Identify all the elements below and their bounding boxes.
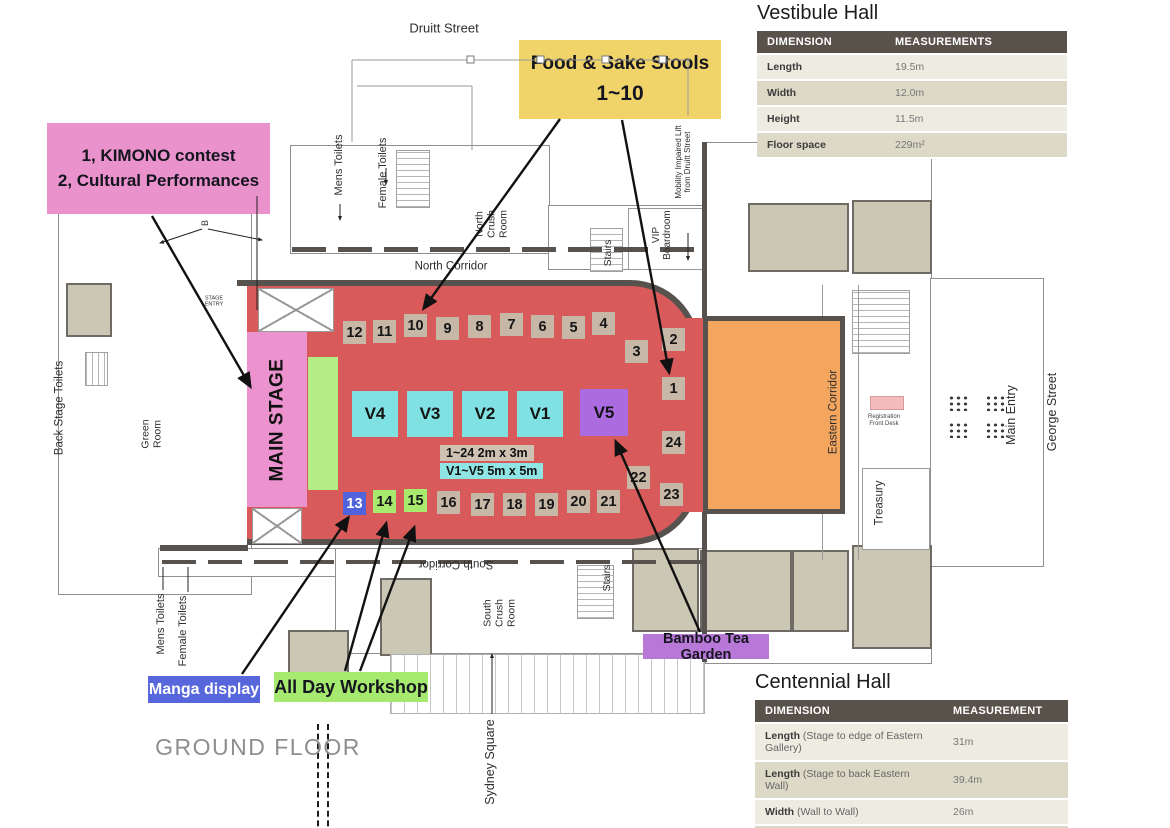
room-label-stairs-bottom: Stairs (602, 565, 614, 592)
table-row: Length (Stage to back Eastern Wall) 39.4… (755, 761, 1068, 799)
stool-7: 7 (500, 313, 523, 336)
stool-3: 3 (625, 340, 648, 363)
callout-food-sake: Food & Sake Stools 1~10 (519, 40, 721, 119)
table-row: Height 11.5m (757, 106, 1067, 132)
room-label-treasury: Treasury (874, 481, 887, 526)
registration-desk (870, 396, 904, 410)
room-label-north-crush: North Crush Room (474, 210, 509, 238)
eastern-corridor-line-east (858, 285, 859, 560)
grand-steps-south (390, 654, 705, 714)
stool-24: 24 (662, 431, 685, 454)
street-label-sydney-square: Sydney Square (483, 719, 497, 804)
centennial-col-dimension: DIMENSION (755, 700, 943, 723)
stool-6: 6 (531, 315, 554, 338)
stool-14: 14 (373, 490, 396, 513)
stairs-north (396, 150, 430, 208)
room-label-female-toilets-top: Female Toilets (377, 138, 389, 209)
room-tea-garden-a (700, 550, 792, 632)
stairs-east (852, 290, 910, 354)
door-label-b: B (200, 220, 210, 226)
vestibule-hall-floor (703, 316, 845, 514)
booth-v2: V2 (462, 391, 508, 437)
room-tea-garden-b (792, 550, 849, 632)
east-wing-west-wall-upper (702, 142, 707, 320)
room-label-stage-entry: STAGE ENTRY (205, 296, 224, 309)
table-row: Length (Stage to edge of Eastern Gallery… (755, 723, 1068, 761)
booth-size-legend: V1~V5 5m x 5m (440, 463, 543, 479)
callout-kimono-line2: 2, Cultural Performances (58, 169, 259, 194)
callout-manga-label: Manga display (149, 681, 259, 699)
room-label-eastern-corridor: Eastern Corridor (828, 370, 841, 454)
stool-9: 9 (436, 317, 459, 340)
room-label-mobility-lift: Mobility Impaired Lift from Druitt Stree… (675, 125, 693, 198)
centennial-hall-title: Centennial Hall (755, 671, 1068, 694)
callout-bamboo: Bamboo Tea Garden (643, 634, 769, 659)
stool-13: 13 (343, 492, 366, 515)
room-corner-ne (852, 200, 932, 274)
stage-skylight-south (252, 508, 302, 544)
callout-workshop: All Day Workshop (274, 672, 428, 702)
stool-1: 1 (662, 377, 685, 400)
vestibule-hall-section: Vestibule Hall DIMENSION MEASUREMENTS Le… (757, 2, 1067, 159)
west-wing-block (58, 208, 252, 595)
callout-kimono-line1: 1, KIMONO contest (82, 144, 236, 169)
centennial-hall-section: Centennial Hall DIMENSION MEASUREMENT Le… (755, 671, 1068, 828)
vestibule-hall-table: DIMENSION MEASUREMENTS Length 19.5m Widt… (757, 31, 1067, 159)
stool-5: 5 (562, 316, 585, 339)
vestibule-col-dimension: DIMENSION (757, 31, 885, 54)
room-label-back-stage-toilets: Back Stage Toilets (54, 361, 67, 455)
room-label-female-toilets-bottom: Female Toilets (177, 596, 189, 667)
table-row: Width (Wall to Wall) 26m (755, 799, 1068, 825)
stool-20: 20 (567, 490, 590, 513)
entry-table-dots (985, 422, 1005, 438)
vestibule-hall-title: Vestibule Hall (757, 2, 1067, 25)
table-row: Length 19.5m (757, 54, 1067, 80)
ground-floor-label: GROUND FLOOR (155, 734, 361, 760)
room-backstage-corner (66, 283, 112, 337)
stairs-west (85, 352, 108, 386)
vestibule-col-measurements: MEASUREMENTS (885, 31, 1067, 54)
label-main-entry: Main Entry (1004, 385, 1018, 445)
booth-v5: V5 (580, 389, 628, 436)
centennial-col-measurement: MEASUREMENT (943, 700, 1068, 723)
entry-table-dots (948, 395, 968, 411)
stool-22: 22 (627, 466, 650, 489)
stool-16: 16 (437, 491, 460, 514)
north-corridor-wall (292, 247, 702, 252)
street-label-george: George Street (1045, 373, 1059, 452)
stool-2: 2 (662, 328, 685, 351)
room-label-north-corridor: North Corridor (415, 260, 488, 273)
centennial-hall-table: DIMENSION MEASUREMENT Length (Stage to e… (755, 700, 1068, 828)
room-label-south-corridor: South Corridor (419, 558, 494, 570)
callout-manga: Manga display (148, 676, 260, 703)
stool-23: 23 (660, 483, 683, 506)
callout-bamboo-label: Bamboo Tea Garden (643, 631, 769, 663)
room-south-pavilion (288, 630, 349, 676)
stool-15: 15 (404, 489, 427, 512)
stool-size-legend: 1~24 2m x 3m (440, 445, 534, 461)
stool-4: 4 (592, 312, 615, 335)
callout-workshop-label: All Day Workshop (274, 677, 428, 698)
booth-v4: V4 (352, 391, 398, 437)
room-south-side (380, 578, 432, 656)
stool-11: 11 (373, 320, 396, 343)
street-label-druitt: Druitt Street (409, 22, 478, 37)
stool-12: 12 (343, 321, 366, 344)
stool-21: 21 (597, 490, 620, 513)
stage-skylight-north (258, 288, 334, 332)
entry-table-dots (985, 395, 1005, 411)
callout-kimono: 1, KIMONO contest 2, Cultural Performanc… (47, 123, 270, 214)
booth-v3: V3 (407, 391, 453, 437)
hall-south-wall-west (160, 545, 248, 551)
treasury-room-outline (862, 468, 930, 550)
room-label-mens-toilets-top: Mens Toilets (333, 135, 345, 196)
booth-v1: V1 (517, 391, 563, 437)
stool-18: 18 (503, 493, 526, 516)
entry-table-dots (948, 422, 968, 438)
room-northeast (748, 203, 849, 272)
room-label-green-room: Green Room (140, 419, 164, 448)
stool-19: 19 (535, 493, 558, 516)
stool-8: 8 (468, 315, 491, 338)
workshop-strip-area (308, 357, 338, 490)
room-label-vip-boardroom: VIP Boardroom (651, 210, 673, 259)
table-row: Width 12.0m (757, 80, 1067, 106)
callout-food-sake-line2: 1~10 (596, 78, 643, 110)
room-label-mens-toilets-bottom: Mens Toilets (155, 594, 167, 655)
stool-10: 10 (404, 314, 427, 337)
floor-plan-canvas: MAIN STAGE 1 2 3 4 5 6 7 8 9 10 11 12 13… (0, 0, 1170, 828)
room-label-registration: Registration Front Desk (868, 414, 900, 428)
table-row: Floor space 229m² (757, 132, 1067, 158)
stool-17: 17 (471, 493, 494, 516)
room-corner-se (852, 545, 932, 649)
callout-food-sake-line1: Food & Sake Stools (531, 50, 709, 79)
room-label-south-crush: South Crush Room (482, 599, 517, 627)
room-label-stairs-top: Stairs (603, 240, 615, 267)
main-stage-label: MAIN STAGE (266, 359, 287, 482)
